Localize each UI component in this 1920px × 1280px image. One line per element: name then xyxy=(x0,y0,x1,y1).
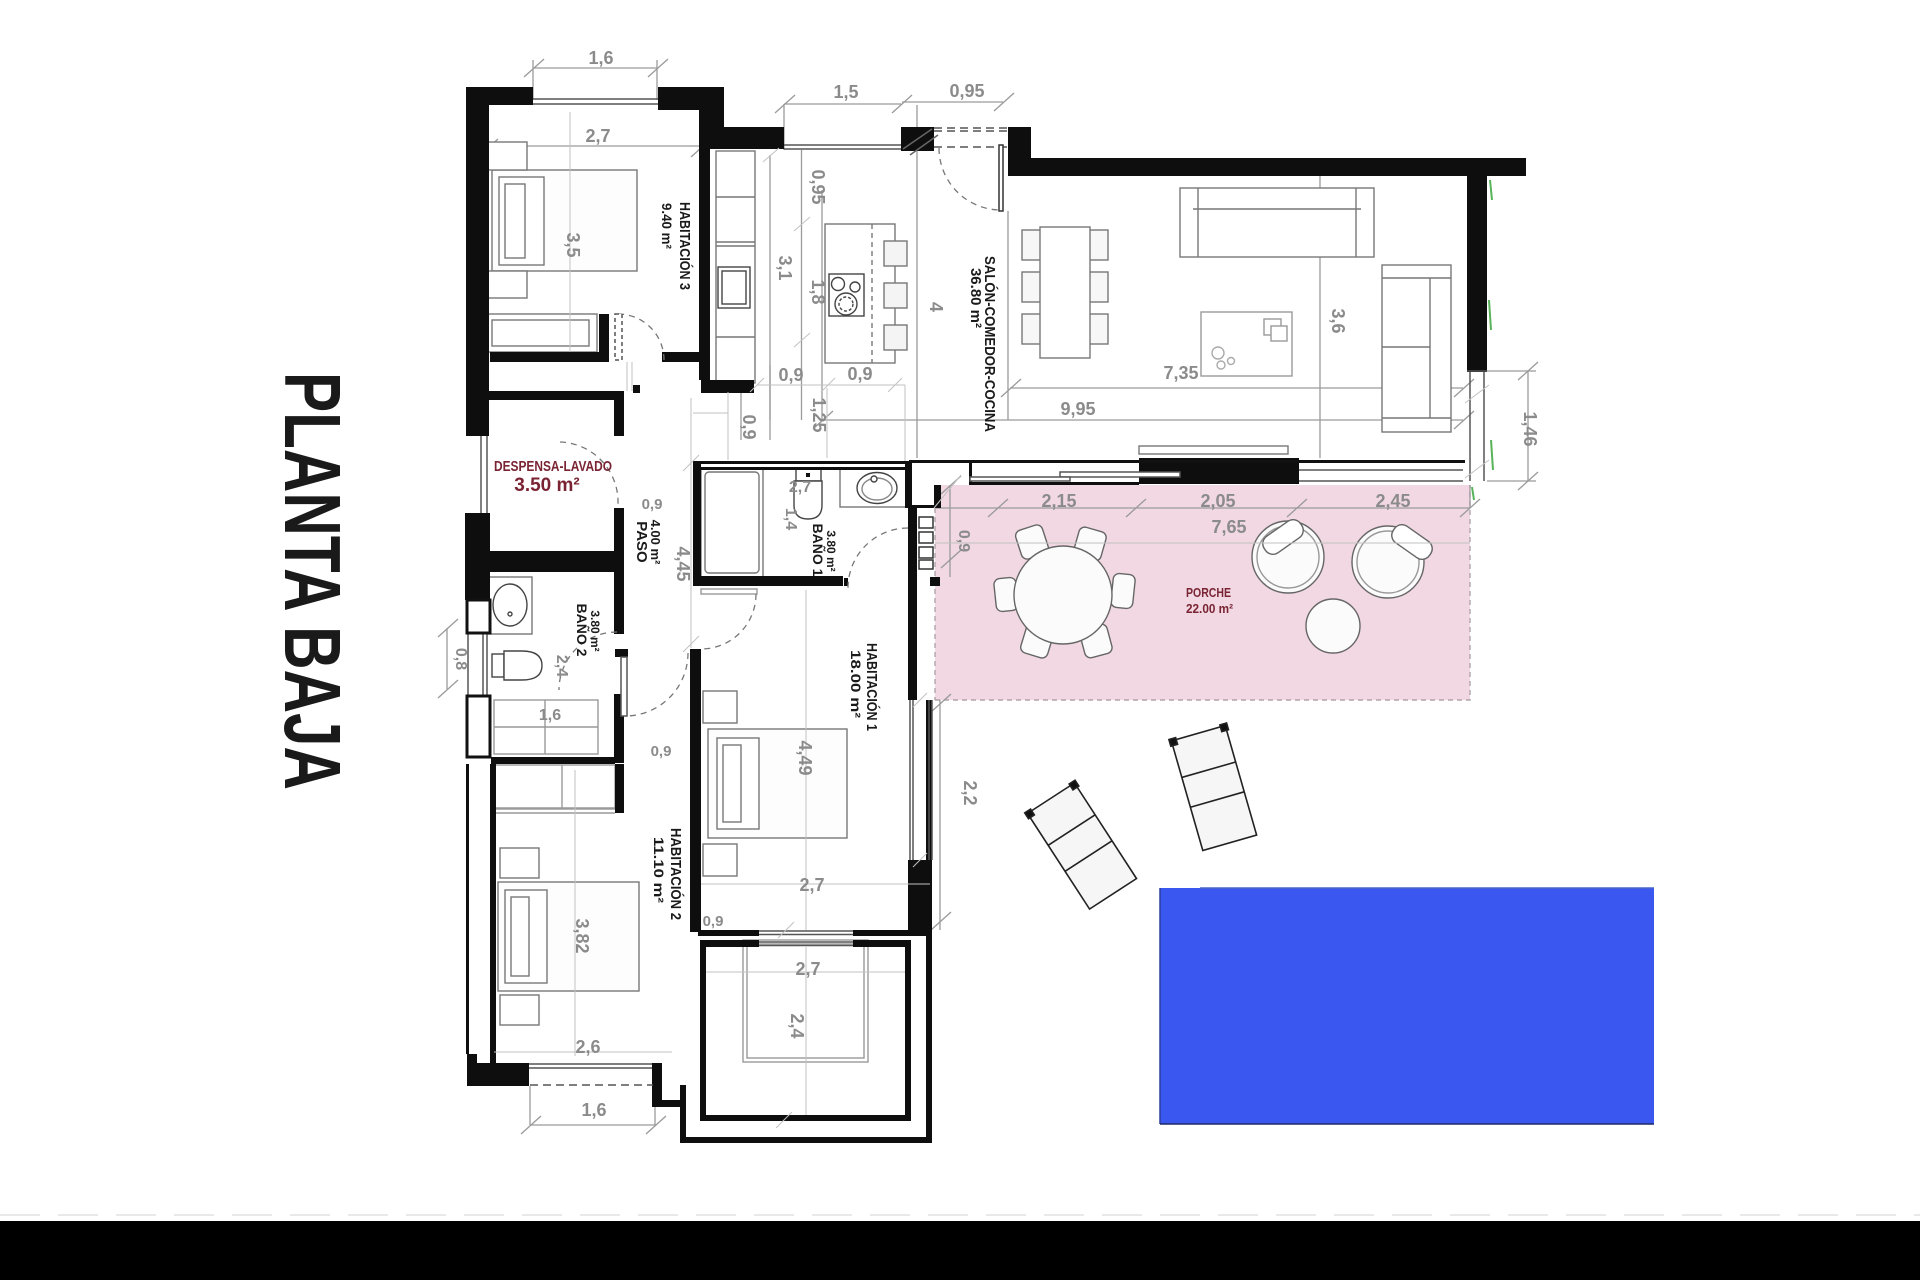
svg-text:4.00 m²: 4.00 m² xyxy=(648,520,663,565)
svg-text:0,9: 0,9 xyxy=(955,530,972,552)
svg-text:3.50 m²: 3.50 m² xyxy=(514,475,579,496)
svg-text:9,95: 9,95 xyxy=(1060,399,1095,419)
svg-text:0,9: 0,9 xyxy=(739,414,759,439)
svg-text:HABITACIÓN 1: HABITACIÓN 1 xyxy=(863,643,881,731)
svg-text:18.00 m²: 18.00 m² xyxy=(848,650,864,718)
svg-text:22.00 m²: 22.00 m² xyxy=(1186,601,1234,616)
svg-text:0,95: 0,95 xyxy=(949,81,984,101)
svg-text:2,05: 2,05 xyxy=(1200,491,1235,511)
svg-text:4: 4 xyxy=(926,302,946,312)
svg-text:2,6: 2,6 xyxy=(575,1037,600,1057)
svg-text:PLANTA BAJA: PLANTA BAJA xyxy=(268,372,357,790)
svg-text:11.10 m²: 11.10 m² xyxy=(651,837,667,903)
svg-text:0,9: 0,9 xyxy=(778,365,803,385)
svg-text:0,9: 0,9 xyxy=(847,364,872,384)
svg-text:3.80 m²: 3.80 m² xyxy=(588,610,602,651)
svg-text:3,82: 3,82 xyxy=(572,918,592,953)
svg-text:DESPENSA-LAVADO: DESPENSA-LAVADO xyxy=(494,458,612,475)
svg-text:1,6: 1,6 xyxy=(588,48,613,68)
svg-text:HABITACIÓN 2: HABITACIÓN 2 xyxy=(667,828,685,920)
svg-text:1,46: 1,46 xyxy=(1520,411,1540,446)
svg-text:2,15: 2,15 xyxy=(1041,491,1076,511)
svg-text:2,7: 2,7 xyxy=(795,959,820,979)
svg-text:7,65: 7,65 xyxy=(1211,517,1246,537)
svg-text:3,1: 3,1 xyxy=(775,255,795,280)
svg-text:1,5: 1,5 xyxy=(833,82,858,102)
svg-text:0,9: 0,9 xyxy=(703,913,724,930)
svg-text:9.40 m²: 9.40 m² xyxy=(659,203,675,249)
svg-text:1,25: 1,25 xyxy=(809,397,829,432)
svg-text:2,45: 2,45 xyxy=(1375,491,1410,511)
svg-text:0,8: 0,8 xyxy=(452,648,469,670)
svg-text:2,4: 2,4 xyxy=(553,655,570,677)
svg-text:2,4: 2,4 xyxy=(787,1013,807,1038)
svg-text:2,7: 2,7 xyxy=(585,126,610,146)
svg-text:0,9: 0,9 xyxy=(642,496,663,513)
svg-text:HABITACIÓN 3: HABITACIÓN 3 xyxy=(676,202,694,290)
svg-text:1,6: 1,6 xyxy=(581,1100,606,1120)
svg-text:4,45: 4,45 xyxy=(673,546,693,581)
svg-text:3,6: 3,6 xyxy=(1328,308,1348,333)
svg-text:0,9: 0,9 xyxy=(651,743,672,760)
svg-text:4,49: 4,49 xyxy=(795,740,815,775)
svg-text:1,8: 1,8 xyxy=(808,279,828,304)
svg-text:36.80 m²: 36.80 m² xyxy=(967,268,984,328)
svg-text:7,35: 7,35 xyxy=(1163,363,1198,383)
svg-text:2,7: 2,7 xyxy=(789,479,811,496)
svg-text:3.80 m²: 3.80 m² xyxy=(824,530,838,571)
svg-text:3,5: 3,5 xyxy=(563,232,583,257)
svg-text:0,95: 0,95 xyxy=(808,169,828,204)
svg-text:2,7: 2,7 xyxy=(799,875,824,895)
svg-text:2,2: 2,2 xyxy=(960,780,980,805)
svg-text:1,4: 1,4 xyxy=(782,508,799,530)
svg-text:PORCHE: PORCHE xyxy=(1186,585,1231,600)
svg-text:PASO: PASO xyxy=(633,521,650,563)
svg-text:1,6: 1,6 xyxy=(539,707,561,724)
